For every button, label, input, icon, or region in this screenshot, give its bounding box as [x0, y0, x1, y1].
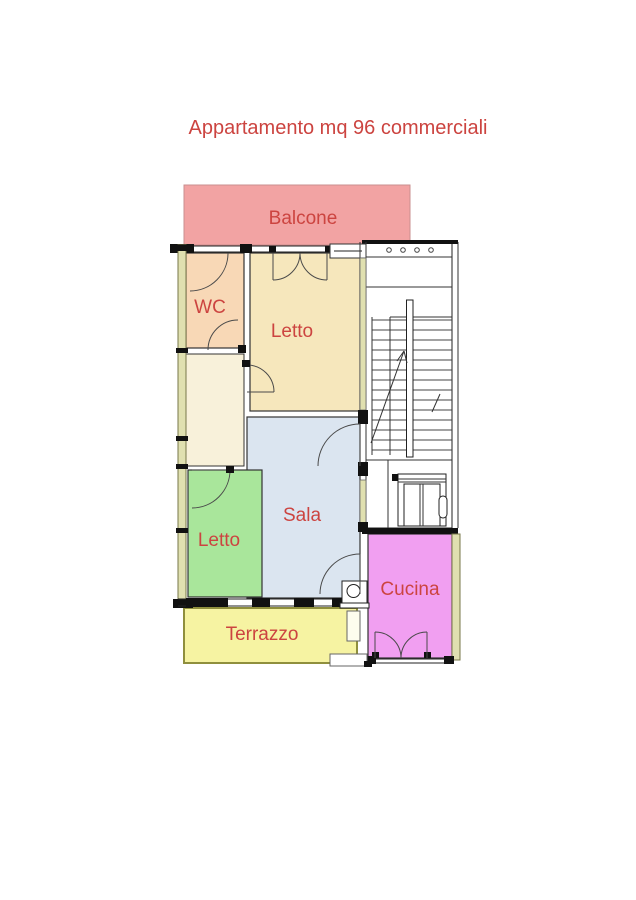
door-hinge-mark: [226, 466, 234, 473]
bottom-wall: [178, 598, 366, 607]
landing-wall-stub: [392, 474, 398, 481]
right-wall: [358, 242, 368, 532]
stair-top-wall: [362, 240, 458, 244]
cucina-right-wall: [452, 534, 460, 660]
elevator-handle: [439, 496, 447, 518]
letto-bottom-label: Letto: [198, 530, 240, 551]
wall-tick: [176, 528, 188, 533]
door-hinge-mark: [238, 345, 246, 353]
wc-label: WC: [194, 297, 226, 318]
terrace-corner-stub: [364, 661, 372, 667]
corridor: [186, 354, 244, 466]
wall-tick: [176, 245, 188, 251]
cucina-top-wall: [362, 528, 458, 534]
plan-title: Appartamento mq 96 commerciali: [188, 117, 487, 139]
terrace-step: [330, 654, 367, 666]
wall-tick: [176, 436, 188, 441]
wall-tick: [176, 464, 188, 469]
wall-tick: [176, 348, 188, 353]
cucina-label: Cucina: [380, 579, 440, 600]
door-jamb: [358, 410, 368, 424]
door-jamb: [444, 656, 454, 664]
door-hinge-mark: [242, 360, 250, 367]
terrace-shaft: [347, 611, 360, 641]
stair-stringer: [407, 300, 414, 457]
sala-label: Sala: [283, 505, 321, 526]
letto-top-label: Letto: [271, 321, 313, 342]
floor-plan-canvas: Appartamento mq 96 commerciali Balcone: [0, 0, 636, 900]
balcone-label: Balcone: [269, 208, 338, 229]
floor-plan-page: Appartamento mq 96 commerciali Balcone: [0, 0, 636, 900]
terrazzo-label: Terrazzo: [226, 624, 299, 645]
boiler-fixture: [340, 581, 369, 608]
stairwell: [362, 240, 458, 528]
